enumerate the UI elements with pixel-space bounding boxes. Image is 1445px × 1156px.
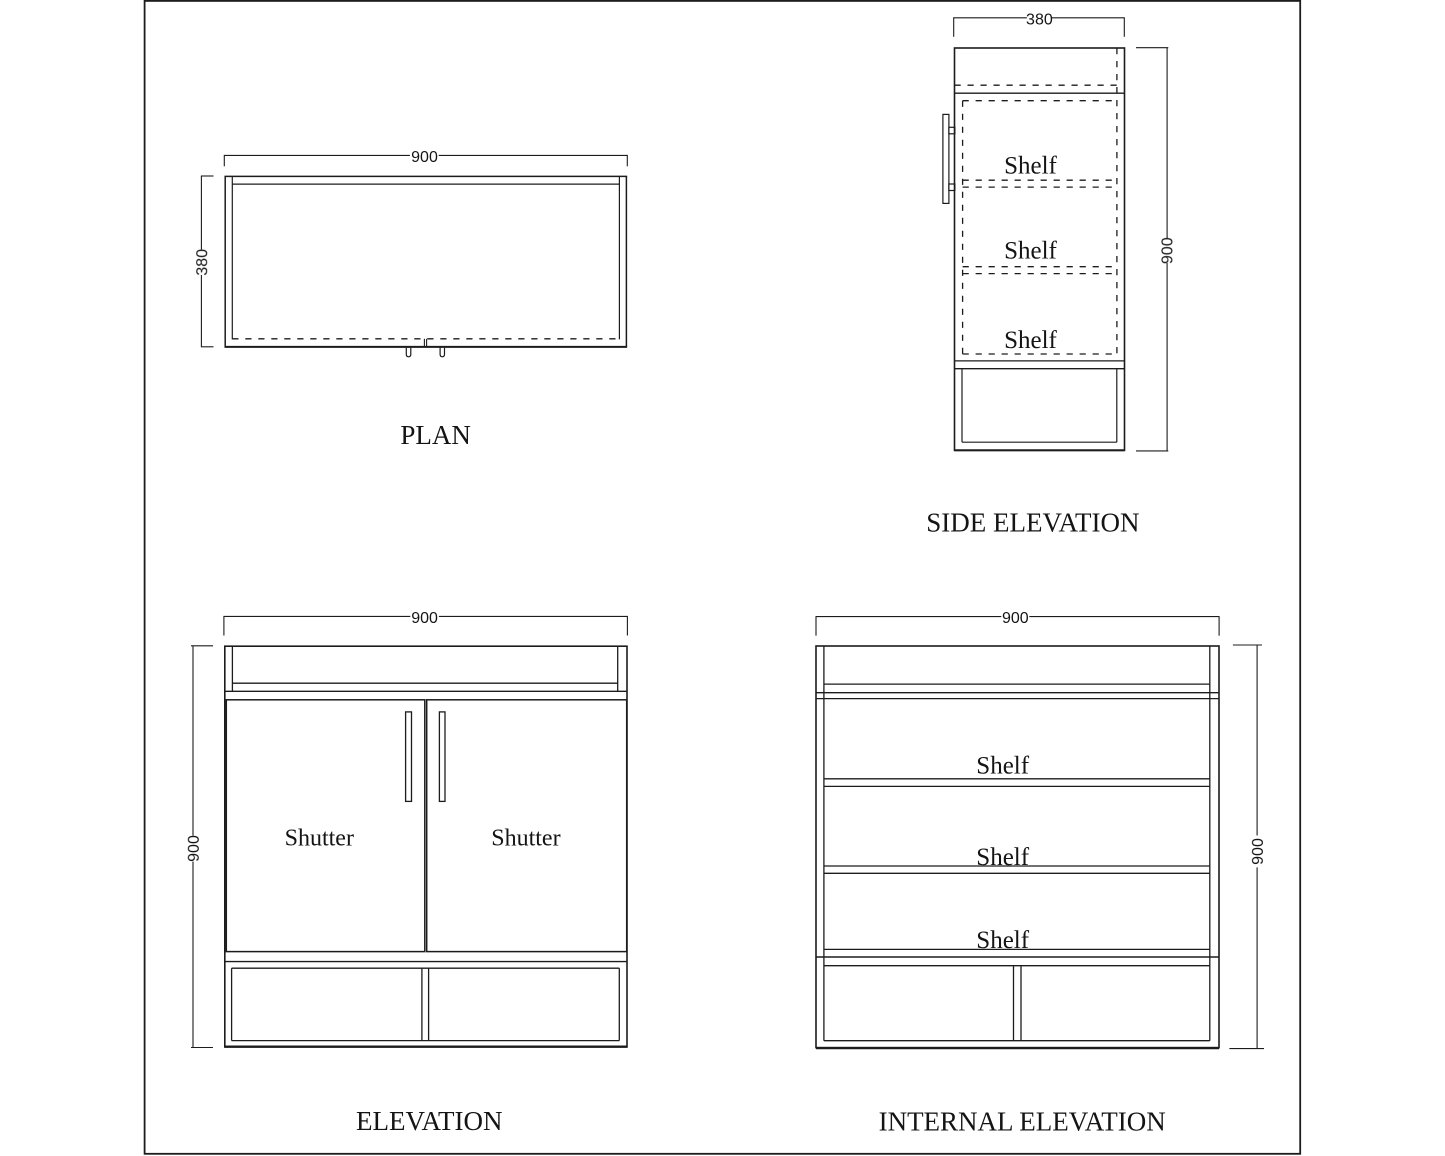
svg-text:Shutter: Shutter: [285, 826, 354, 852]
svg-text:Shelf: Shelf: [1004, 153, 1057, 180]
svg-text:900: 900: [186, 835, 203, 862]
svg-text:Shelf: Shelf: [976, 844, 1029, 871]
svg-text:900: 900: [411, 610, 438, 627]
svg-text:900: 900: [1159, 237, 1176, 264]
svg-text:Shelf: Shelf: [976, 752, 1029, 779]
svg-text:Shelf: Shelf: [1004, 238, 1057, 265]
svg-text:ELEVATION: ELEVATION: [356, 1106, 502, 1136]
svg-text:Shelf: Shelf: [976, 927, 1029, 954]
svg-text:Shutter: Shutter: [491, 826, 560, 852]
svg-text:INTERNAL ELEVATION: INTERNAL ELEVATION: [879, 1107, 1166, 1137]
svg-text:Shelf: Shelf: [1004, 327, 1057, 354]
svg-text:SIDE ELEVATION: SIDE ELEVATION: [926, 507, 1139, 537]
svg-text:380: 380: [1026, 12, 1053, 29]
svg-text:900: 900: [411, 149, 438, 166]
svg-text:PLAN: PLAN: [400, 420, 471, 450]
svg-text:900: 900: [1002, 610, 1029, 627]
svg-text:380: 380: [194, 249, 211, 276]
svg-text:900: 900: [1250, 838, 1267, 865]
